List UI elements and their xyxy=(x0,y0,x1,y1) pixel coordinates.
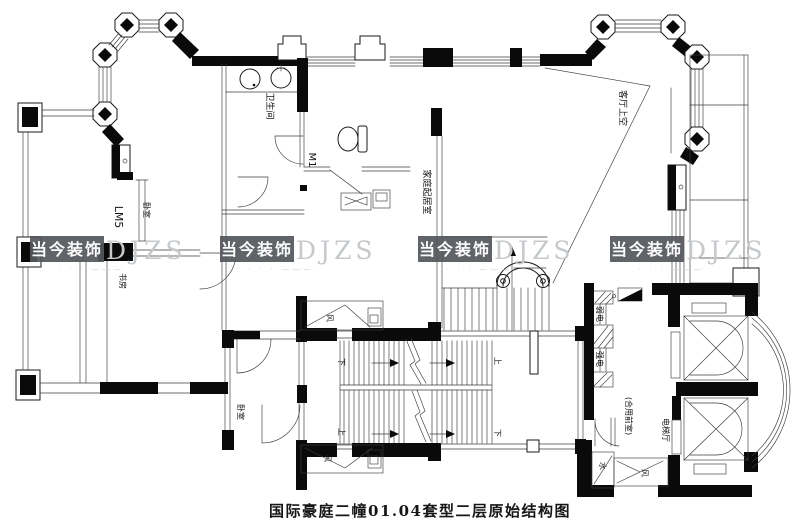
watermark-tagline: · · · ——— xyxy=(638,265,704,274)
electric-shafts xyxy=(593,288,642,387)
watermark-tagline: · · · ——— xyxy=(248,265,314,274)
label-weak-electric: 弱电 xyxy=(595,306,605,322)
watermark-tagline: · · · ——— xyxy=(58,265,124,274)
duct-symbol xyxy=(618,289,642,301)
label-shared-front-room: (合用前室) xyxy=(624,397,634,435)
floor-plan-page: 卫生间 M1 家庭起居室 客厅上空 卧室 LM5 书房 卧室 弱电 强电 (合用… xyxy=(0,0,805,531)
watermark: 当今装饰 DJZS · · · ——— xyxy=(30,236,187,274)
sink-icon xyxy=(271,64,291,88)
watermark: 当今装饰 DJZS · · · ——— xyxy=(418,236,575,274)
label-air-shaft: 风 xyxy=(325,314,334,322)
stair-break-line xyxy=(406,338,426,384)
label-strong-electric: 强电 xyxy=(595,351,605,367)
wall-pilaster-bump xyxy=(278,36,306,60)
turret-top-left xyxy=(93,13,199,180)
elevator-shaft-2 xyxy=(672,398,748,474)
label-elevator-hall: 电梯厅 xyxy=(661,418,671,442)
wall-pilaster-bump xyxy=(355,36,385,60)
label-bedroom-upper: 卧室 xyxy=(142,202,152,218)
watermark: 当今装饰 DJZS · · · ——— xyxy=(220,236,377,274)
study-south-wall xyxy=(40,382,228,394)
sink-icon xyxy=(240,69,260,89)
label-living-room-void: 客厅上空 xyxy=(617,90,629,126)
watermark-cn: 当今装饰 xyxy=(611,240,683,259)
door-arc xyxy=(237,339,271,373)
watermark-logo-text: DJZS xyxy=(686,236,767,265)
watermark-cn: 当今装饰 xyxy=(419,240,491,259)
label-bathroom: 卫生间 xyxy=(264,92,276,119)
door-arc xyxy=(595,419,619,446)
label-family-living-room: 家庭起居室 xyxy=(421,169,433,214)
door-arc xyxy=(262,405,300,443)
bedroom-lower xyxy=(222,330,307,450)
stair-direction-arrow xyxy=(446,359,455,367)
top-exterior-wall xyxy=(192,36,592,67)
floor-plan-drawing: 卫生间 M1 家庭起居室 客厅上空 卧室 LM5 书房 卧室 弱电 强电 (合用… xyxy=(0,0,805,531)
bathroom xyxy=(222,58,410,214)
stair-break-line xyxy=(412,390,431,442)
label-stair-up: 上 xyxy=(493,357,502,365)
label-window-lm5: LM5 xyxy=(112,206,125,229)
family-room-wall xyxy=(431,108,442,328)
stair-direction-arrow xyxy=(390,359,399,367)
door-arc xyxy=(238,177,268,207)
bedroom-upper xyxy=(98,64,236,330)
elevator-shaft-1 xyxy=(671,303,748,380)
label-stair-down: 下 xyxy=(337,358,346,366)
stair-direction-arrow xyxy=(390,430,399,438)
drawing-caption: 国际豪庭二幢01.04套型二层原始结构图 xyxy=(269,502,571,520)
label-stair-down: 下 xyxy=(493,429,502,437)
label-study: 书房 xyxy=(118,273,128,289)
stair-direction-arrow xyxy=(446,430,455,438)
label-water-shaft: 水 xyxy=(598,462,608,470)
watermark-tagline: · · · ——— xyxy=(446,265,512,274)
label-air-shaft: 风 xyxy=(640,469,649,477)
water-shaft xyxy=(592,452,614,488)
washer-icon xyxy=(341,193,371,210)
watermark-cn: 当今装饰 xyxy=(221,240,293,259)
label-stair-up: 上 xyxy=(337,428,346,436)
label-door-m1: M1 xyxy=(306,153,317,168)
main-staircase xyxy=(296,296,586,490)
door-arc xyxy=(275,136,303,164)
toilet-icon xyxy=(338,126,367,152)
watermark-logo-text: DJZS xyxy=(296,236,377,265)
label-bedroom-lower: 卧室 xyxy=(236,404,246,420)
elevator-block xyxy=(577,283,790,497)
watermark-logo-text: DJZS xyxy=(494,236,575,265)
air-shaft-top xyxy=(301,301,383,330)
watermark-cn: 当今装饰 xyxy=(31,240,103,259)
watermark-logo-text: DJZS xyxy=(106,236,187,265)
label-air-shaft: 风 xyxy=(323,454,332,462)
